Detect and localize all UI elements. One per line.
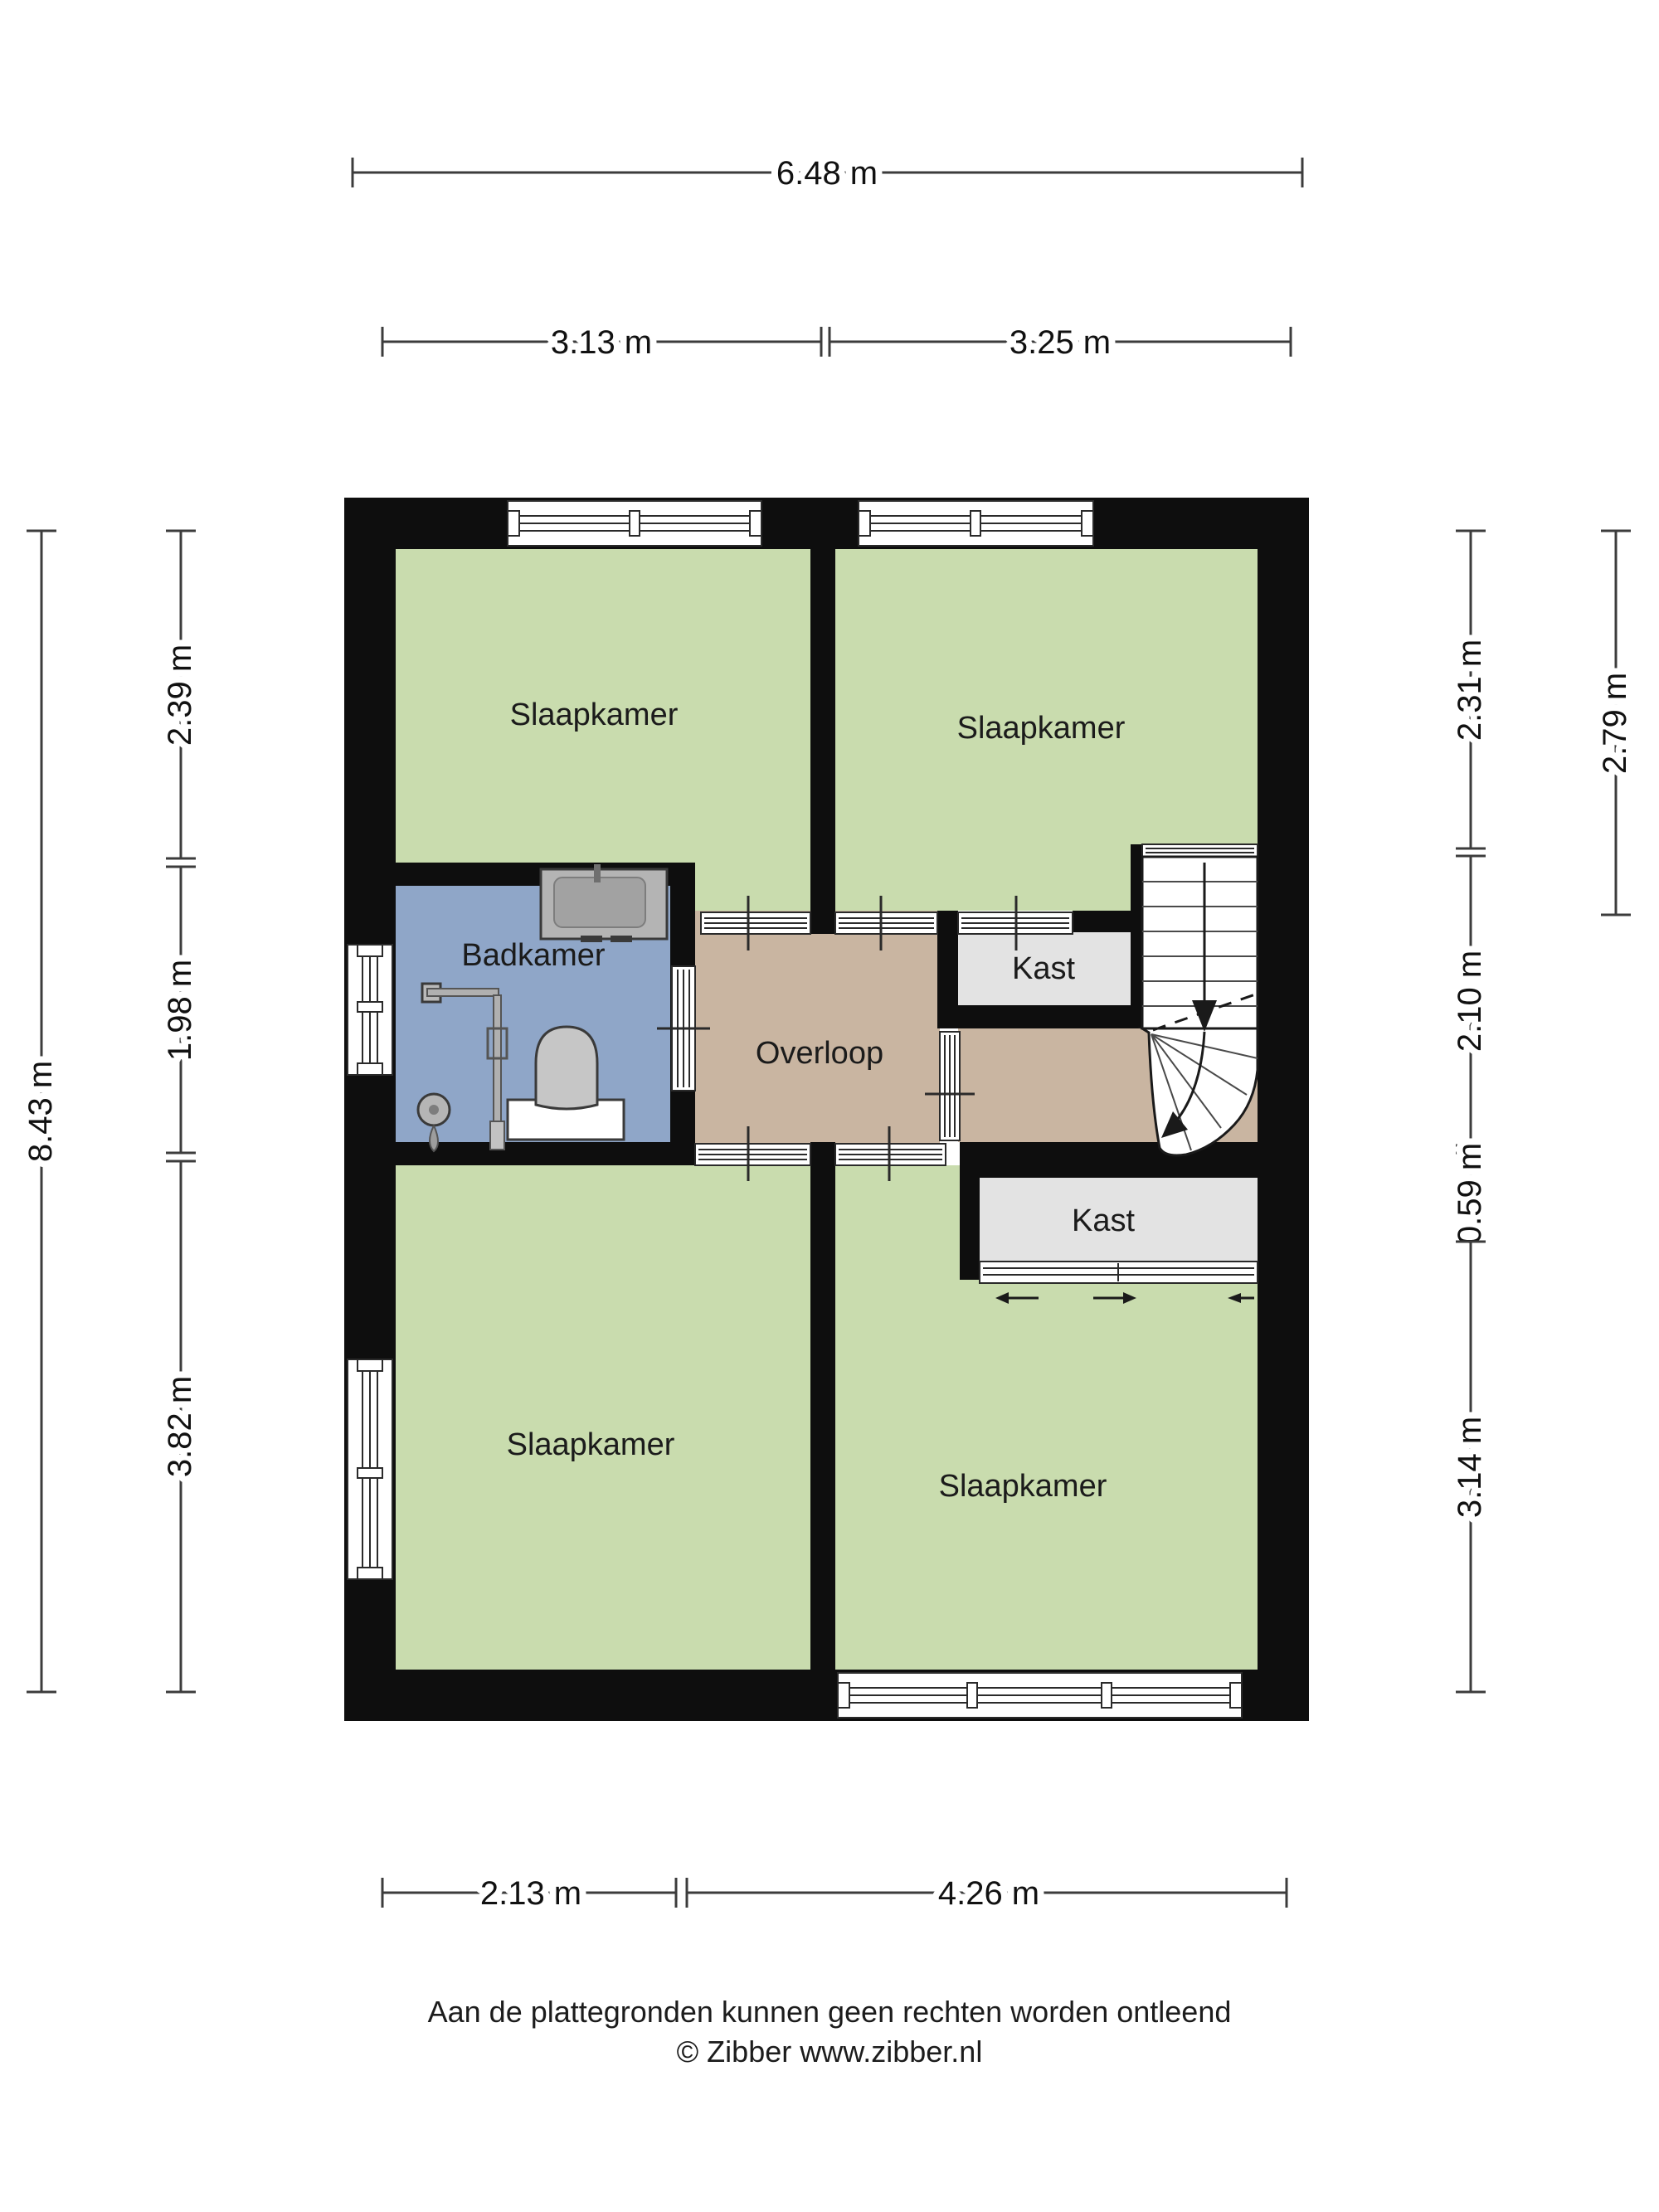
door-overloop-to-bedroom-tr (835, 912, 937, 934)
dim-left-3-label: 3.82 m (162, 1376, 198, 1477)
wall-pier-landing-top (810, 911, 835, 934)
footer: Aan de plattegronden kunnen geen rechten… (428, 1995, 1232, 2069)
dim-bottom-right-label: 4.26 m (938, 1875, 1039, 1912)
window-top-left (508, 501, 761, 546)
dim-left-3: 3.82 m (162, 1161, 198, 1692)
wall-closet-top-left (937, 911, 958, 1018)
dim-right-4-label: 3.14 m (1452, 1417, 1488, 1518)
wall-outer-top (344, 498, 1309, 549)
dim-top-right-label: 3.25 m (1010, 324, 1111, 361)
dim-top-total-label: 6.48 m (776, 155, 878, 192)
door-overloop-to-bedroom-bl (695, 1144, 810, 1165)
label-slaapkamer-bl: Slaapkamer (507, 1427, 675, 1462)
wall-stairhall-bottom (960, 1142, 1258, 1178)
dim-bottom-left: 2.13 m (382, 1875, 676, 1912)
dim-right-1-label: 2.31 m (1452, 639, 1488, 741)
dim-right-2: 2.10 m (1452, 856, 1488, 1145)
dim-right-3-label: 0.59 m (1452, 1143, 1488, 1244)
footer-credit: © Zibber www.zibber.nl (677, 2035, 983, 2069)
wall-closet-top-right-seg (1073, 911, 1131, 932)
dim-right-outer: 2.79 m (1597, 531, 1633, 915)
wall-closet-top-bottom (937, 1005, 1142, 1028)
wall-outer-right (1258, 498, 1309, 1721)
label-slaapkamer-br: Slaapkamer (939, 1469, 1107, 1504)
dim-right-1: 2.31 m (1452, 531, 1488, 848)
window-bottom (838, 1673, 1242, 1718)
dim-top-right: 3.25 m (829, 324, 1291, 361)
dim-left-1-label: 2.39 m (162, 644, 198, 746)
window-bathroom-left (348, 945, 392, 1075)
dim-left-1: 2.39 m (162, 531, 198, 858)
dim-left-total-label: 8.43 m (22, 1061, 59, 1162)
dim-left-total: 8.43 m (22, 531, 59, 1692)
dim-right-2-label: 2.10 m (1452, 950, 1488, 1052)
staircase (1142, 857, 1258, 1155)
dim-right-4: 3.14 m (1452, 1242, 1488, 1692)
dim-bottom-left-label: 2.13 m (480, 1875, 581, 1912)
wall-divider-top-bedrooms (810, 549, 835, 911)
footer-disclaimer: Aan de plattegronden kunnen geen rechten… (428, 1995, 1232, 2029)
dim-bottom-right: 4.26 m (687, 1875, 1287, 1912)
wall-pier-landing-bottom (810, 1142, 835, 1165)
wall-divider-bottom-bedrooms (810, 1165, 835, 1670)
dim-top-left: 3.13 m (382, 324, 821, 361)
label-kast-boven: Kast (1012, 951, 1075, 986)
wall-closet-bottom-left (960, 1178, 980, 1280)
dim-left-2-label: 1.98 m (162, 960, 198, 1061)
label-slaapkamer-tl: Slaapkamer (510, 698, 679, 732)
label-kast-onder: Kast (1072, 1203, 1135, 1238)
wall-stairwell-left (1131, 844, 1142, 1028)
dim-right-3: 0.59 m (1452, 1143, 1488, 1244)
label-overloop: Overloop (756, 1036, 883, 1071)
floor-plan-canvas: 6.48 m 3.13 m 3.25 m 2.13 m 4.26 m (0, 0, 1659, 2212)
dim-top-total: 6.48 m (353, 155, 1302, 192)
window-top-right (859, 501, 1093, 546)
floorplan-page: 6.48 m 3.13 m 3.25 m 2.13 m 4.26 m (0, 0, 1659, 2212)
dim-right-outer-label: 2.79 m (1597, 673, 1633, 774)
label-badkamer: Badkamer (461, 938, 606, 973)
window-bedroom-left (348, 1359, 392, 1579)
wall-bathroom-bottom (396, 1142, 695, 1165)
label-slaapkamer-tr: Slaapkamer (957, 711, 1126, 746)
dim-top-left-label: 3.13 m (551, 324, 652, 361)
door-overloop-to-stairhall (940, 1032, 960, 1140)
stair-railing (1142, 844, 1258, 857)
door-overloop-to-bedroom-tl (701, 912, 810, 934)
dim-left-2: 1.98 m (162, 867, 198, 1153)
sink-vanity (541, 864, 667, 942)
